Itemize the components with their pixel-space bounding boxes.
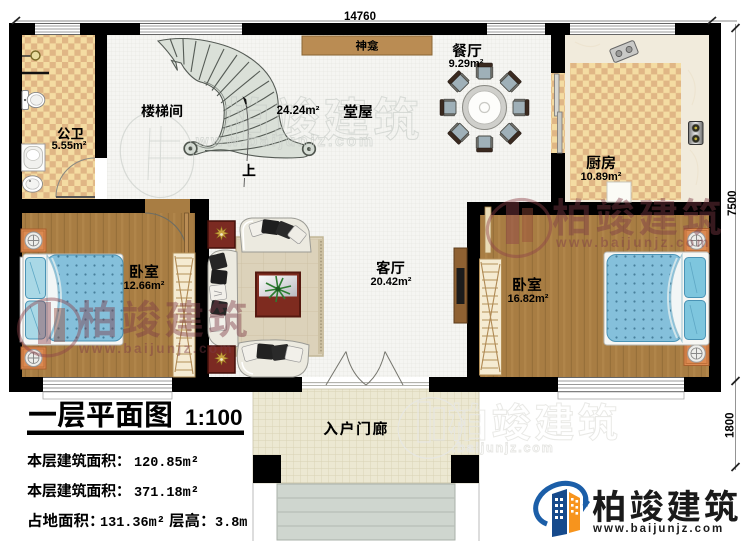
svg-text:www.baijunjz.com: www.baijunjz.com (555, 235, 711, 250)
svg-text:7500: 7500 (727, 190, 739, 216)
svg-text:3.8m: 3.8m (215, 516, 247, 531)
svg-text:14760: 14760 (344, 11, 376, 23)
svg-text:12.66m²: 12.66m² (124, 280, 165, 292)
svg-text:10.89m²: 10.89m² (581, 171, 622, 183)
svg-text:1800: 1800 (725, 412, 737, 438)
svg-text:1:100: 1:100 (185, 405, 243, 430)
svg-text:www.baijunjz.com: www.baijunjz.com (195, 133, 376, 150)
svg-text:131.36m²: 131.36m² (100, 516, 165, 531)
svg-text:www.baijunjz.com: www.baijunjz.com (592, 523, 724, 535)
svg-text:5.55m²: 5.55m² (52, 140, 87, 152)
svg-text:16.82m²: 16.82m² (508, 293, 549, 305)
svg-text:20.42m²: 20.42m² (371, 276, 412, 288)
svg-text:www.baijunjz.com: www.baijunjz.com (78, 341, 234, 356)
svg-text:9.29m²: 9.29m² (449, 58, 484, 70)
svg-text:120.85m²: 120.85m² (134, 456, 199, 471)
svg-text:24.24m²: 24.24m² (277, 105, 320, 117)
svg-text:.baijunjz.com: .baijunjz.com (452, 441, 555, 455)
svg-text:371.18m²: 371.18m² (134, 486, 199, 501)
